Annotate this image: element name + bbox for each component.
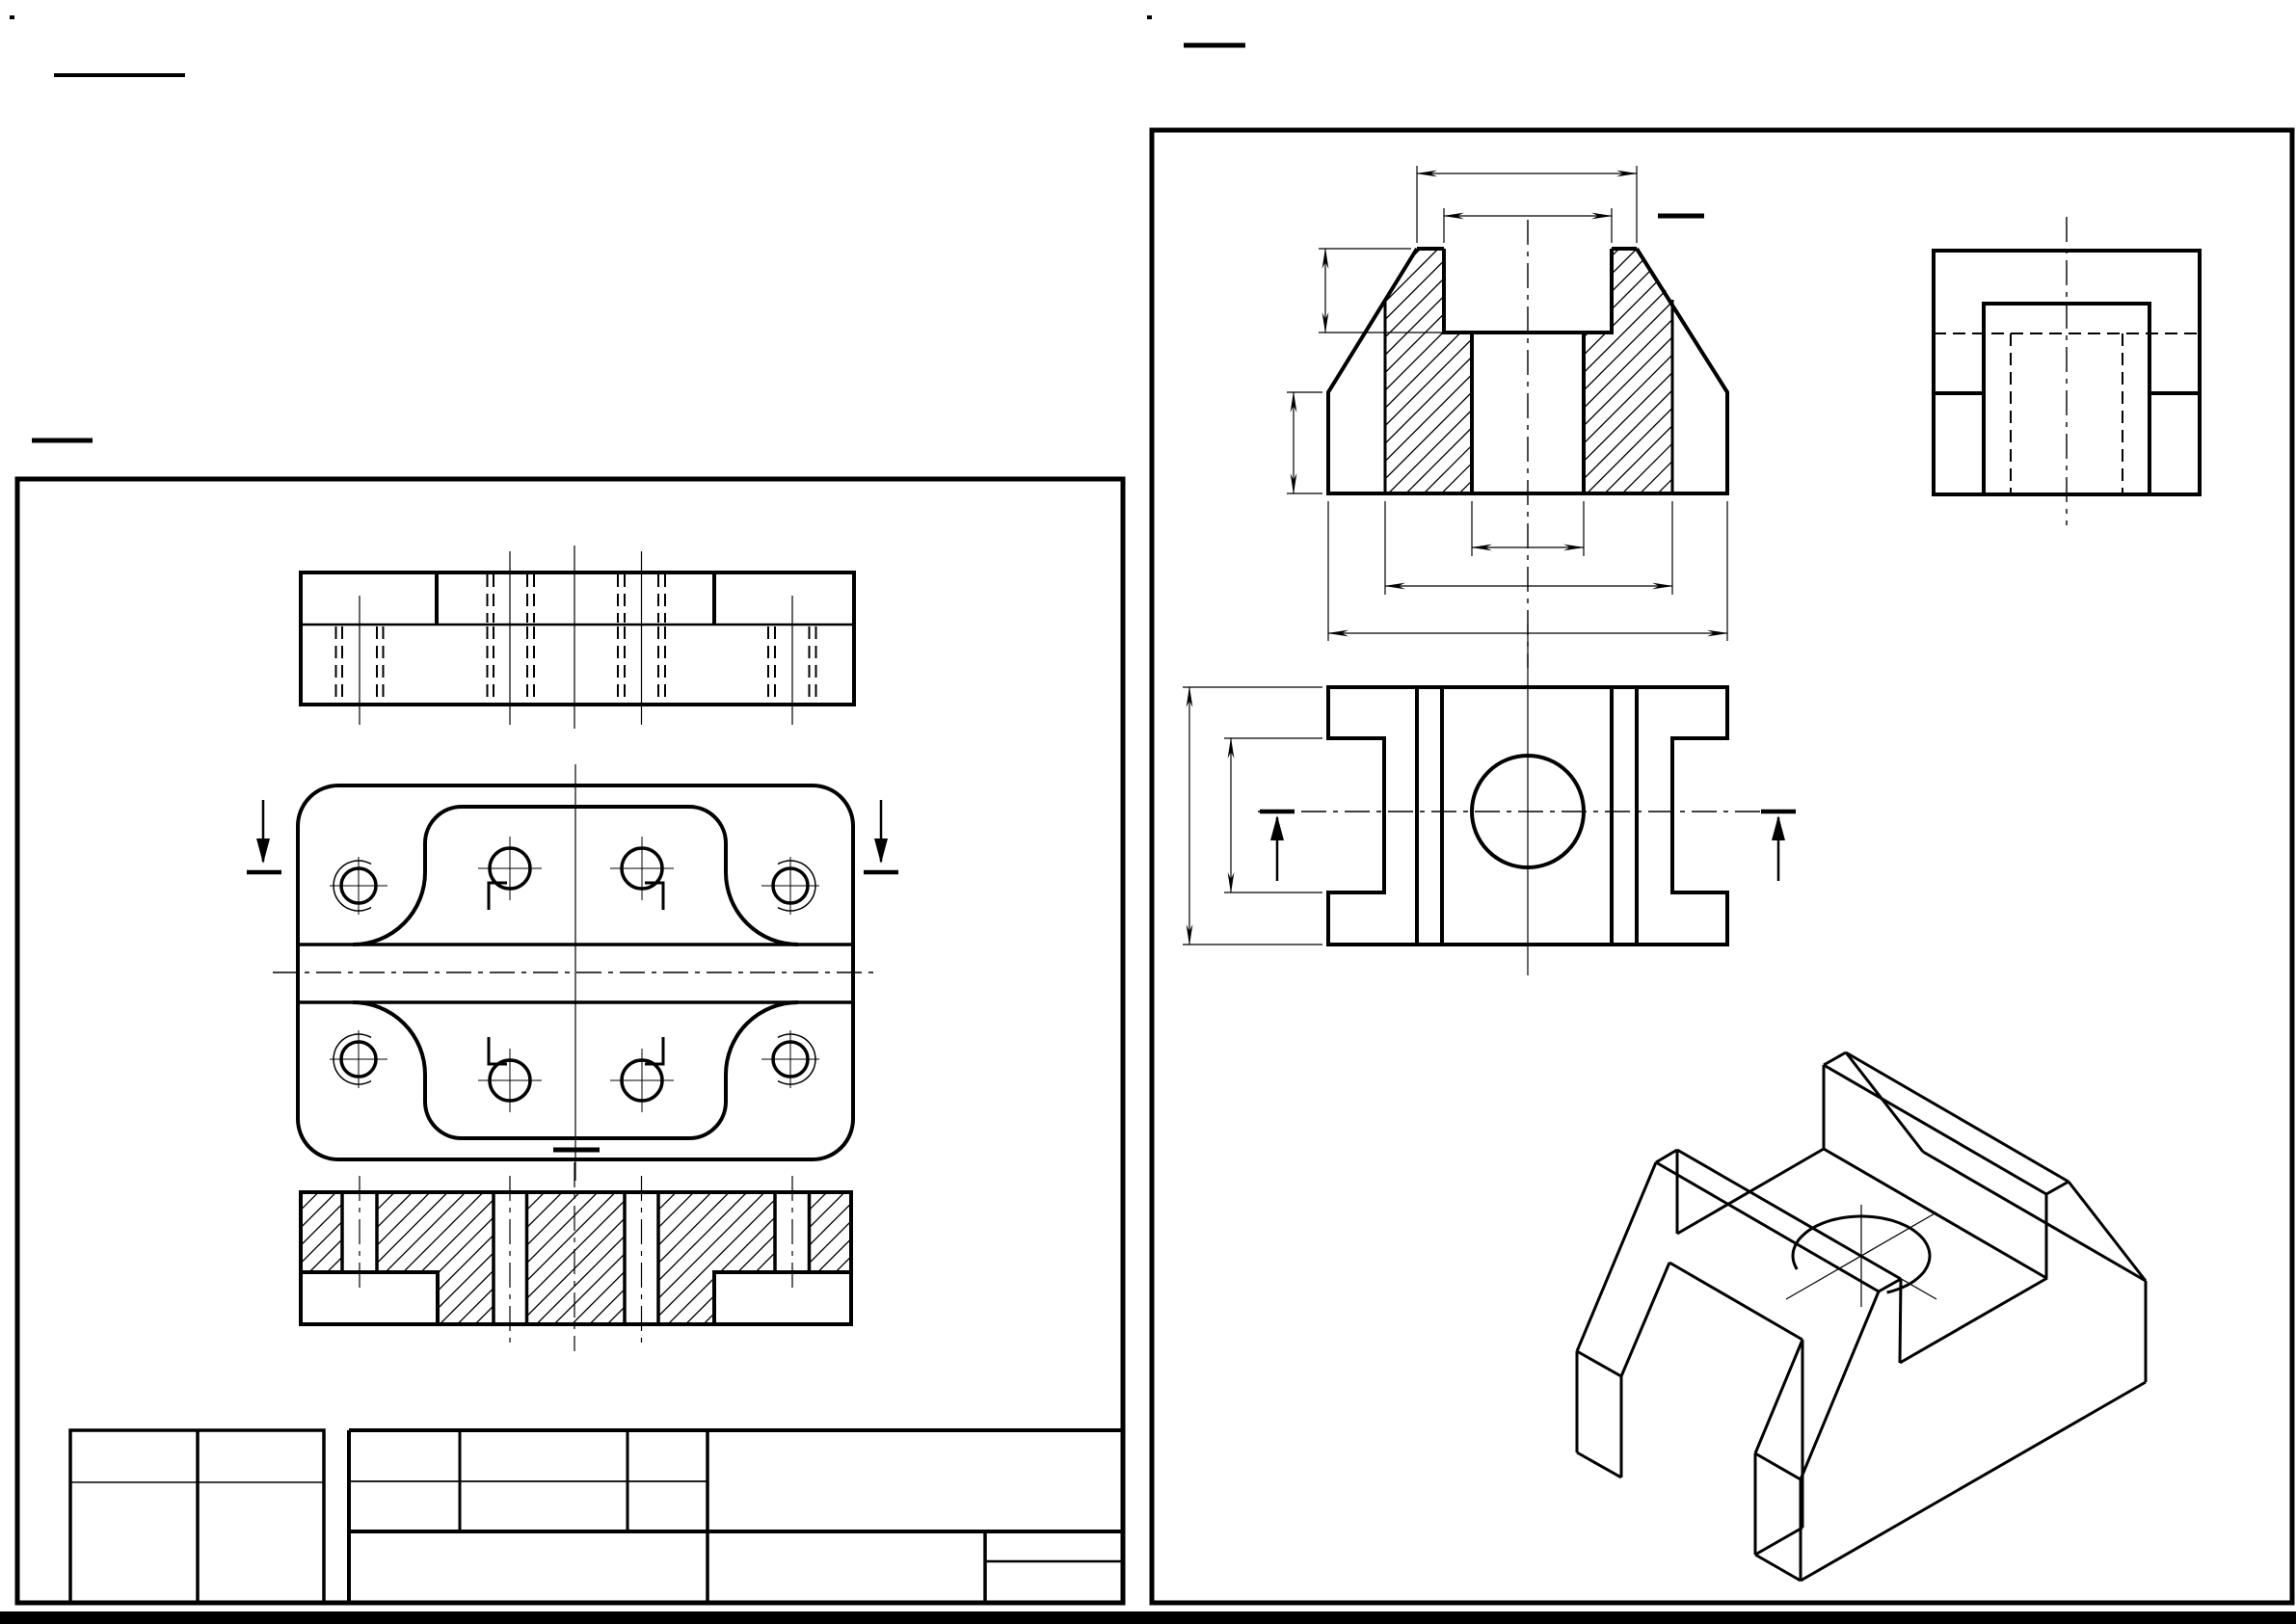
title-block-small	[70, 1430, 324, 1603]
bottom-black-bar	[0, 1611, 2296, 1624]
margin-marks	[10, 15, 1245, 440]
plan-view-left-sheet	[247, 764, 898, 1181]
title-block-main	[349, 1430, 1123, 1603]
sheet-left-frame	[17, 479, 1123, 1603]
front-section-view	[1140, 166, 1903, 668]
sheet-right-frame	[1152, 130, 2292, 1603]
side-view	[1934, 217, 2200, 525]
drawing-canvas	[0, 0, 2296, 1624]
section-view-a-a	[221, 1150, 916, 1351]
isometric-view	[1577, 1052, 2146, 1581]
top-view	[1183, 625, 1796, 975]
cad-drawing-svg	[0, 0, 2296, 1624]
front-view-left-sheet	[301, 546, 854, 729]
